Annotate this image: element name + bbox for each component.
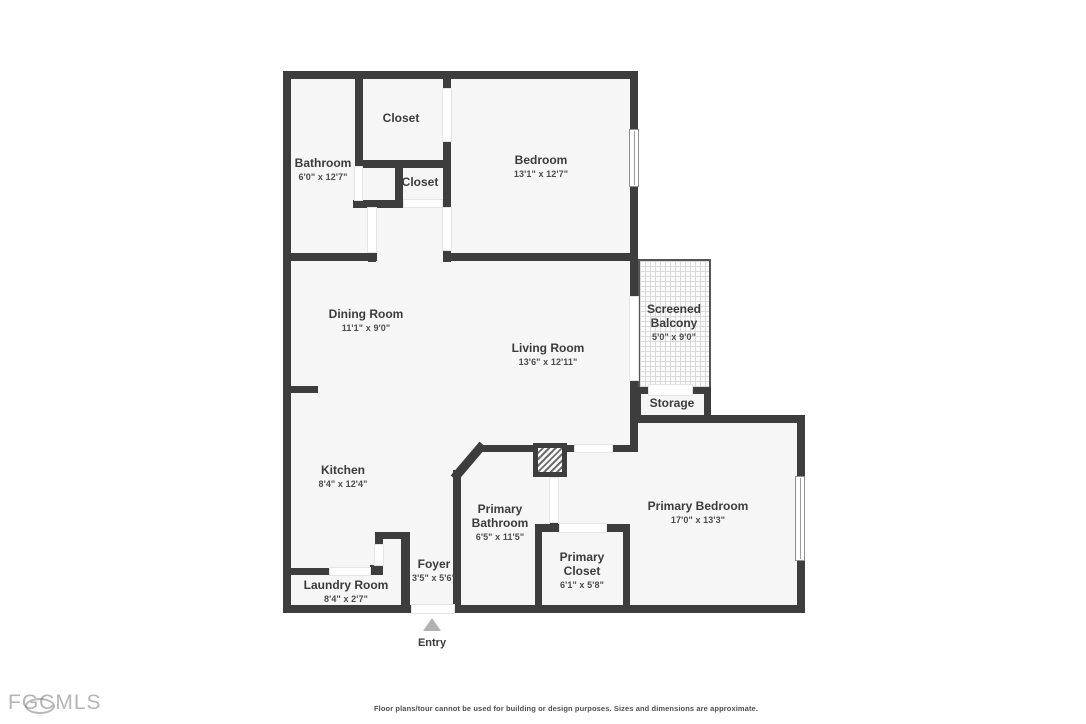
room-dims: 5'0" x 9'0" [641, 332, 707, 342]
window-bedroom [629, 129, 639, 187]
room-name: Closet [402, 176, 439, 190]
window-primary-bedroom [795, 476, 805, 561]
wall-exterior-bottom [283, 605, 805, 613]
room-label-bathroom: Bathroom 6'0" x 12'7" [295, 157, 352, 182]
room-label-foyer: Foyer 3'5" x 5'6" [412, 558, 456, 583]
door-storage [648, 384, 693, 396]
room-label-bedroom: Bedroom 13'1" x 12'7" [514, 154, 568, 179]
door-linen-closet [354, 166, 363, 201]
sliding-door-balcony [629, 296, 639, 381]
wall-kitchen-stub [283, 386, 318, 393]
disclaimer-text: Floor plans/tour cannot be used for buil… [374, 704, 758, 713]
door-laundry [329, 567, 371, 576]
room-name: Screened Balcony [641, 303, 707, 331]
wall-suite-top-c [613, 445, 638, 452]
door-primary-bathroom [549, 477, 559, 523]
room-name: Closet [383, 112, 420, 126]
room-label-primary-bathroom: Primary Bathroom 6'5" x 11'5" [465, 503, 535, 542]
door-primary-closet [559, 523, 607, 533]
room-label-primary-bedroom: Primary Bedroom 17'0" x 13'3" [648, 500, 749, 525]
wall-exterior-left [283, 71, 291, 613]
wall-linen-bottom [353, 200, 403, 208]
wall-exterior-top [283, 71, 638, 79]
room-label-screened-balcony: Screened Balcony 5'0" x 9'0" [641, 303, 707, 342]
room-dims: 13'6" x 12'11" [512, 357, 585, 367]
room-dims: 6'1" x 5'8" [553, 580, 611, 590]
room-dims: 17'0" x 13'3" [648, 515, 749, 525]
entry-arrow-icon [423, 618, 441, 631]
room-dims: 8'4" x 12'4" [318, 479, 367, 489]
room-label-primary-closet: Primary Closet 6'1" x 5'8" [553, 551, 611, 590]
wall-primary-bath-left [453, 470, 461, 613]
fgcmls-logo-text: FGCMLS [8, 691, 102, 714]
room-label-storage: Storage [650, 397, 695, 411]
room-name: Storage [650, 397, 695, 411]
room-label-living-room: Living Room 13'6" x 12'11" [512, 342, 585, 367]
entry-opening [411, 604, 455, 614]
door-bedroom [442, 207, 452, 251]
room-dims: 11'1" x 9'0" [329, 323, 404, 333]
room-dims: 8'4" x 2'7" [304, 594, 389, 604]
wall-closet-left [355, 71, 363, 168]
room-name: Kitchen [318, 464, 367, 478]
wall-primary-closet-left [535, 524, 542, 613]
room-dims: 6'5" x 11'5" [465, 532, 535, 542]
wall-bedroom-bottom [443, 253, 638, 261]
wall-pantry-right [401, 532, 410, 613]
wall-primary-bedroom-top [634, 415, 805, 423]
wall-laundry-top-a [283, 568, 330, 575]
fgcmls-logo-mark-icon [25, 698, 55, 714]
wall-laundry-top-b [370, 565, 383, 575]
door-hall-closet [403, 199, 443, 208]
entry-text: Entry [418, 637, 446, 649]
room-label-closet-small: Closet [402, 176, 439, 190]
fgcmls-logo: FGCMLS [8, 691, 102, 715]
room-dims: 6'0" x 12'7" [295, 172, 352, 182]
room-name: Living Room [512, 342, 585, 356]
room-name: Primary Closet [553, 551, 611, 579]
room-name: Primary Bathroom [465, 503, 535, 531]
door-bathroom [367, 207, 377, 253]
entry-label: Entry [418, 637, 446, 649]
room-label-kitchen: Kitchen 8'4" x 12'4" [318, 464, 367, 489]
room-dims: 13'1" x 12'7" [514, 169, 568, 179]
room-name: Laundry Room [304, 579, 389, 593]
room-name: Bedroom [514, 154, 568, 168]
door-primary-suite [574, 444, 613, 453]
room-name: Primary Bedroom [648, 500, 749, 514]
room-dims: 3'5" x 5'6" [412, 573, 456, 583]
wall-bathroom-bottom [283, 253, 377, 261]
room-name: Foyer [412, 558, 456, 572]
room-label-closet-top: Closet [383, 112, 420, 126]
wall-suite-top-a [477, 445, 535, 452]
room-name: Bathroom [295, 157, 352, 171]
door-pantry [374, 544, 384, 566]
wall-primary-closet-right [623, 524, 630, 613]
room-label-dining-room: Dining Room 11'1" x 9'0" [329, 308, 404, 333]
door-bedroom-closet [442, 88, 452, 142]
room-label-laundry-room: Laundry Room 8'4" x 2'7" [304, 579, 389, 604]
shower-fixture [533, 443, 567, 477]
room-name: Dining Room [329, 308, 404, 322]
